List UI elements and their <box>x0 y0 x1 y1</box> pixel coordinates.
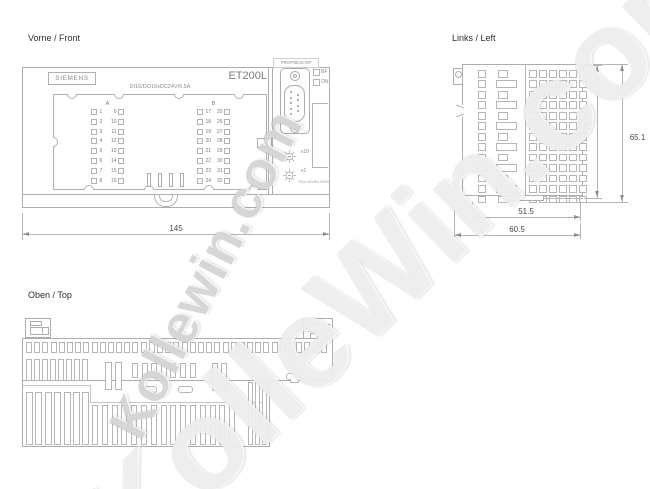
vent-grid-row <box>529 185 587 193</box>
vent-slot <box>64 392 71 445</box>
terminal-number: 15 <box>108 168 118 174</box>
vent-hole <box>529 122 537 130</box>
terminal-group-b-rows: 17251826192720282129223023312432 <box>197 109 230 184</box>
vent-slot <box>280 342 286 353</box>
housing-recess-line <box>312 103 313 168</box>
model-label: ET200L <box>205 70 267 82</box>
vent-hole <box>478 185 486 193</box>
bracket-detail-line <box>42 327 43 335</box>
vent-grid-row <box>529 133 587 141</box>
led-on-label: ON <box>321 79 329 85</box>
vent-slot <box>66 359 72 381</box>
terminal-notch <box>174 94 184 99</box>
vent-hole <box>539 91 547 99</box>
terminal-box <box>224 109 230 115</box>
dim-value-60-5: 60.5 <box>497 225 537 234</box>
bracket-detail <box>30 321 42 326</box>
vent-hole <box>569 91 577 99</box>
terminal-row: 311 <box>91 129 124 135</box>
top-opening <box>178 386 193 393</box>
vent-slot <box>170 405 176 445</box>
top-slot-group <box>26 392 89 445</box>
vent-hole <box>569 154 577 162</box>
vent-slot <box>210 405 216 445</box>
terminal-number: 7 <box>97 168 107 174</box>
vent-slot <box>141 342 147 353</box>
vent-hole <box>539 154 547 162</box>
vent-hole <box>529 80 537 88</box>
vent-grid-row <box>529 143 587 151</box>
led-bf-label: BF <box>321 69 327 75</box>
dim-line-61 <box>597 65 598 199</box>
vent-slot <box>105 362 112 390</box>
vent-hole <box>559 185 567 193</box>
vent-hole <box>559 112 567 120</box>
vent-grid <box>529 70 587 206</box>
left-foot-lip <box>544 198 583 199</box>
dsub-screw-bottom-hole <box>293 126 297 130</box>
vent-hole <box>549 154 557 162</box>
terminal-box <box>224 148 230 154</box>
dsub-pin <box>290 91 292 93</box>
vent-hole <box>539 70 547 78</box>
top-slot-group <box>132 363 196 378</box>
vent-hole <box>579 143 587 151</box>
top-view <box>22 285 347 470</box>
dsub-pin <box>297 105 299 107</box>
vent-hole <box>559 91 567 99</box>
terminal-box <box>118 138 124 144</box>
left-hole-column <box>478 70 486 203</box>
vent-slot <box>170 363 176 378</box>
terminal-number: 27 <box>214 129 224 135</box>
vent-hole <box>569 70 577 78</box>
terminal-notch <box>53 137 58 147</box>
terminal-group-b: B 17251826192720282129223023312432 <box>197 100 230 187</box>
dim-arrow <box>595 66 599 72</box>
vent-hole <box>529 175 537 183</box>
terminal-number: 12 <box>108 138 118 144</box>
dsub-pin <box>290 102 292 104</box>
vent-hole <box>549 175 557 183</box>
vent-slot <box>190 405 196 445</box>
dsub-pin <box>290 97 292 99</box>
vent-hole <box>539 101 547 109</box>
terminal-row: 715 <box>91 168 124 174</box>
terminal-notch <box>114 94 124 99</box>
mount-ear-hole <box>455 71 462 78</box>
dim-arrow <box>595 191 599 197</box>
top-opening-notch <box>290 379 299 383</box>
left-view: 61 65.1 51.5 60.5 <box>440 30 650 245</box>
terminal-number: 9 <box>108 109 118 115</box>
dim-ext-line <box>584 65 602 66</box>
vent-slot <box>161 363 167 378</box>
vent-hole <box>478 164 486 172</box>
terminal-number: 20 <box>203 138 213 144</box>
top-slot-group <box>248 382 267 445</box>
dim-value-65-1: 65.1 <box>626 133 649 142</box>
mount-bracket-left <box>25 318 51 338</box>
terminal-box <box>118 168 124 174</box>
vent-hole <box>579 133 587 141</box>
led-on <box>313 79 320 86</box>
terminal-number: 19 <box>203 129 213 135</box>
vent-slot <box>296 342 302 353</box>
vent-slot <box>313 342 319 353</box>
dim-arrow <box>23 232 29 236</box>
vent-slot <box>82 392 89 445</box>
terminal-number: 32 <box>214 178 224 184</box>
vent-slot <box>121 405 127 445</box>
terminal-row: 2432 <box>197 178 230 184</box>
vent-slot <box>200 405 206 445</box>
terminal-number: 10 <box>108 119 118 125</box>
vent-hole <box>498 175 508 183</box>
section-divider <box>268 68 273 194</box>
vent-slot <box>229 405 235 445</box>
dim-value-51-5: 51.5 <box>506 207 546 216</box>
vent-grid-row <box>529 91 587 99</box>
vent-slot <box>54 392 61 445</box>
vent-hole <box>569 164 577 172</box>
vent-hole <box>559 154 567 162</box>
dsub-pin <box>290 113 292 115</box>
vent-grid-row <box>529 70 587 78</box>
vent-slot <box>263 342 269 353</box>
vent-slot <box>82 359 88 381</box>
vent-hole <box>539 133 547 141</box>
terminal-row: 1725 <box>197 109 230 115</box>
vent-slot <box>221 363 227 391</box>
terminal-box <box>118 109 124 115</box>
front-vent-slot <box>180 173 184 187</box>
terminal-row: 2129 <box>197 148 230 154</box>
terminal-number: 18 <box>203 119 213 125</box>
vent-slot <box>34 359 40 381</box>
vent-hole <box>498 133 508 141</box>
terminal-block-tab <box>257 138 272 148</box>
terminal-box <box>224 138 230 144</box>
left-view-divider <box>525 65 526 195</box>
dim-arrow <box>473 215 479 219</box>
vent-slot <box>321 342 327 353</box>
housing-recess-line <box>312 167 328 168</box>
terminal-row: 412 <box>91 138 124 144</box>
vent-hole <box>498 70 508 78</box>
vent-hole <box>549 122 557 130</box>
dim-arrow <box>574 233 580 237</box>
front-view: SIEMENS ET200L DI16/DO16xDC24V/0.5A A 19… <box>22 67 332 247</box>
vent-slot <box>132 363 138 378</box>
vent-hole <box>549 70 557 78</box>
terminal-number: 16 <box>108 178 118 184</box>
terminal-box <box>224 129 230 135</box>
terminal-number: 29 <box>214 148 224 154</box>
vent-slot <box>206 342 212 353</box>
vent-hole <box>529 164 537 172</box>
vent-grid-row <box>529 164 587 172</box>
vent-slot <box>67 342 73 353</box>
vent-slot <box>219 405 225 445</box>
bracket-detail <box>308 324 330 332</box>
terminal-box <box>118 158 124 164</box>
vent-hole <box>579 91 587 99</box>
terminal-box <box>118 178 124 184</box>
vent-hole <box>496 101 517 109</box>
vent-hole <box>549 80 557 88</box>
terminal-row: 513 <box>91 148 124 154</box>
terminal-row: 1927 <box>197 129 230 135</box>
dim-ext-line <box>580 223 581 239</box>
vent-slot <box>161 405 167 445</box>
vent-slot <box>180 363 186 378</box>
vent-hole <box>478 101 486 109</box>
terminal-number: 17 <box>203 109 213 115</box>
vent-hole <box>478 133 486 141</box>
dim-ext-line <box>584 198 602 199</box>
switch-x1-label: x1 <box>301 168 306 174</box>
terminal-group-a: A 19210311412513614715816 <box>91 100 124 187</box>
vent-hole <box>539 185 547 193</box>
vent-hole <box>498 91 508 99</box>
terminal-row: 19 <box>91 109 124 115</box>
vent-slot <box>255 342 261 353</box>
top-slot-pair <box>212 363 227 391</box>
terminal-notch <box>67 94 77 99</box>
top-slot-pair <box>105 362 122 390</box>
vent-hole <box>496 80 517 88</box>
terminal-row: 816 <box>91 178 124 184</box>
dim-ext-line <box>329 213 330 240</box>
mount-bracket-right <box>303 318 333 340</box>
terminal-number: 13 <box>108 148 118 154</box>
address-switch-x10-icon <box>282 149 297 164</box>
vent-hole <box>559 143 567 151</box>
vent-slot <box>141 405 147 445</box>
dsub-pin <box>297 94 299 96</box>
vent-hole <box>559 122 567 130</box>
vent-slot <box>42 359 48 381</box>
terminal-number: 24 <box>203 178 213 184</box>
vent-hole <box>579 175 587 183</box>
vent-hole <box>569 101 577 109</box>
terminal-number: 11 <box>108 129 118 135</box>
vent-hole <box>569 175 577 183</box>
vent-hole <box>549 143 557 151</box>
terminal-box <box>224 168 230 174</box>
led-bf <box>313 69 320 76</box>
vent-hole <box>529 70 537 78</box>
vent-slot <box>74 359 80 381</box>
vent-hole <box>539 164 547 172</box>
terminal-number: 14 <box>108 158 118 164</box>
vent-slot <box>26 392 33 445</box>
dsub-body <box>284 85 305 122</box>
vent-slot <box>42 342 48 353</box>
dim-arrow <box>574 215 580 219</box>
vent-slot <box>34 342 40 353</box>
dim-value-61: 61 <box>581 122 595 131</box>
vent-hole <box>496 185 517 193</box>
vent-hole <box>529 143 537 151</box>
terminal-box <box>224 119 230 125</box>
vent-slot <box>262 382 267 445</box>
terminal-number: 4 <box>97 138 107 144</box>
vent-slot <box>26 359 32 381</box>
vent-slot <box>142 363 148 378</box>
drawing-code: TDo-16LBo-0090 <box>272 179 329 184</box>
vent-slot <box>59 342 65 353</box>
vent-hole <box>549 101 557 109</box>
vent-slot <box>58 359 64 381</box>
terminal-number: 2 <box>97 119 107 125</box>
vent-slot <box>51 342 57 353</box>
vent-hole <box>539 122 547 130</box>
terminal-box <box>118 148 124 154</box>
terminal-notch <box>234 94 244 99</box>
housing-recess-line <box>312 103 328 104</box>
terminal-box <box>224 158 230 164</box>
top-slot-group <box>26 359 88 381</box>
vent-hole <box>549 164 557 172</box>
front-view-label: Vorne / Front <box>28 33 80 43</box>
vent-hole <box>478 80 486 88</box>
vent-hole <box>529 185 537 193</box>
front-vent-slot <box>169 173 173 187</box>
terminal-number: 31 <box>214 168 224 174</box>
vent-hole <box>569 143 577 151</box>
vent-hole <box>539 80 547 88</box>
terminal-group-a-label: A <box>91 100 124 109</box>
vent-slot <box>182 342 188 353</box>
vent-hole <box>559 80 567 88</box>
vent-hole <box>579 101 587 109</box>
step-line <box>90 385 91 403</box>
vent-grid-row <box>529 175 587 183</box>
terminal-number: 21 <box>203 148 213 154</box>
vent-slot <box>75 342 81 353</box>
vent-slot <box>45 392 52 445</box>
terminal-row: 2028 <box>197 138 230 144</box>
vent-hole <box>569 112 577 120</box>
vent-hole <box>569 185 577 193</box>
step-line <box>90 402 267 403</box>
dim-ext-line <box>548 202 628 203</box>
terminal-row: 614 <box>91 158 124 164</box>
vent-hole <box>496 143 517 151</box>
dim-arrow <box>620 65 624 71</box>
dim-line-145 <box>22 234 330 235</box>
terminal-box <box>224 178 230 184</box>
vent-slot <box>198 342 204 353</box>
vent-slot <box>92 342 98 353</box>
top-opening <box>285 358 297 365</box>
vent-hole <box>569 80 577 88</box>
vent-hole <box>478 196 486 204</box>
vent-hole <box>549 112 557 120</box>
dim-line-65-1 <box>622 64 623 203</box>
left-foot <box>507 195 544 201</box>
vent-slot <box>190 342 196 353</box>
vent-slot <box>149 342 155 353</box>
terminal-number: 22 <box>203 158 213 164</box>
step-line <box>23 385 90 386</box>
middle-hole-column <box>496 70 517 203</box>
vent-hole <box>579 185 587 193</box>
terminal-group-b-label: B <box>197 100 230 109</box>
terminal-number: 28 <box>214 138 224 144</box>
vent-hole <box>559 164 567 172</box>
front-vent-slot <box>158 173 162 187</box>
vent-grid-row <box>529 154 587 162</box>
vent-slot <box>132 342 138 353</box>
vent-hole <box>579 164 587 172</box>
top-vent-row <box>26 342 327 353</box>
dim-ext-line <box>580 202 581 221</box>
vent-hole <box>529 154 537 162</box>
terminal-number: 23 <box>203 168 213 174</box>
terminal-row: 2230 <box>197 158 230 164</box>
bracket-detail-line <box>323 324 324 332</box>
vent-slot <box>272 342 278 353</box>
vent-hole <box>559 175 567 183</box>
dsub-screw-top-hole <box>293 74 297 78</box>
dim-line-60-5 <box>454 235 581 236</box>
vent-hole <box>498 154 508 162</box>
vent-hole <box>549 91 557 99</box>
terminal-number: 1 <box>97 109 107 115</box>
vent-slot <box>190 363 196 378</box>
vent-slot <box>35 392 42 445</box>
vent-hole <box>496 122 517 130</box>
vent-slot <box>180 405 186 445</box>
vent-hole <box>579 112 587 120</box>
vent-hole <box>478 143 486 151</box>
terminal-number: 25 <box>214 109 224 115</box>
dim-value-145: 145 <box>161 224 191 233</box>
vent-slot <box>212 363 218 391</box>
vent-slot <box>116 342 122 353</box>
vent-hole <box>478 122 486 130</box>
top-slot-group <box>92 405 235 445</box>
vent-slot <box>115 362 122 390</box>
terminal-number: 30 <box>214 158 224 164</box>
vent-slot <box>102 405 108 445</box>
vent-slot <box>100 342 106 353</box>
dim-line-51-5 <box>472 217 581 218</box>
vent-slot <box>83 342 89 353</box>
top-opening <box>142 386 157 393</box>
vent-slot <box>92 405 98 445</box>
vent-slot <box>26 342 32 353</box>
vent-slot <box>304 342 310 353</box>
vent-hole <box>559 70 567 78</box>
vent-hole <box>539 143 547 151</box>
vent-hole <box>529 112 537 120</box>
vent-grid-row <box>529 122 587 130</box>
switch-x10-label: x10 <box>301 149 309 155</box>
vent-hole <box>569 133 577 141</box>
terminal-number: 8 <box>97 178 107 184</box>
vent-hole <box>549 133 557 141</box>
vent-hole <box>478 154 486 162</box>
vent-slot <box>255 382 260 445</box>
vent-hole <box>529 133 537 141</box>
vent-hole <box>478 175 486 183</box>
vent-slot <box>248 382 253 445</box>
terminal-number: 6 <box>97 158 107 164</box>
